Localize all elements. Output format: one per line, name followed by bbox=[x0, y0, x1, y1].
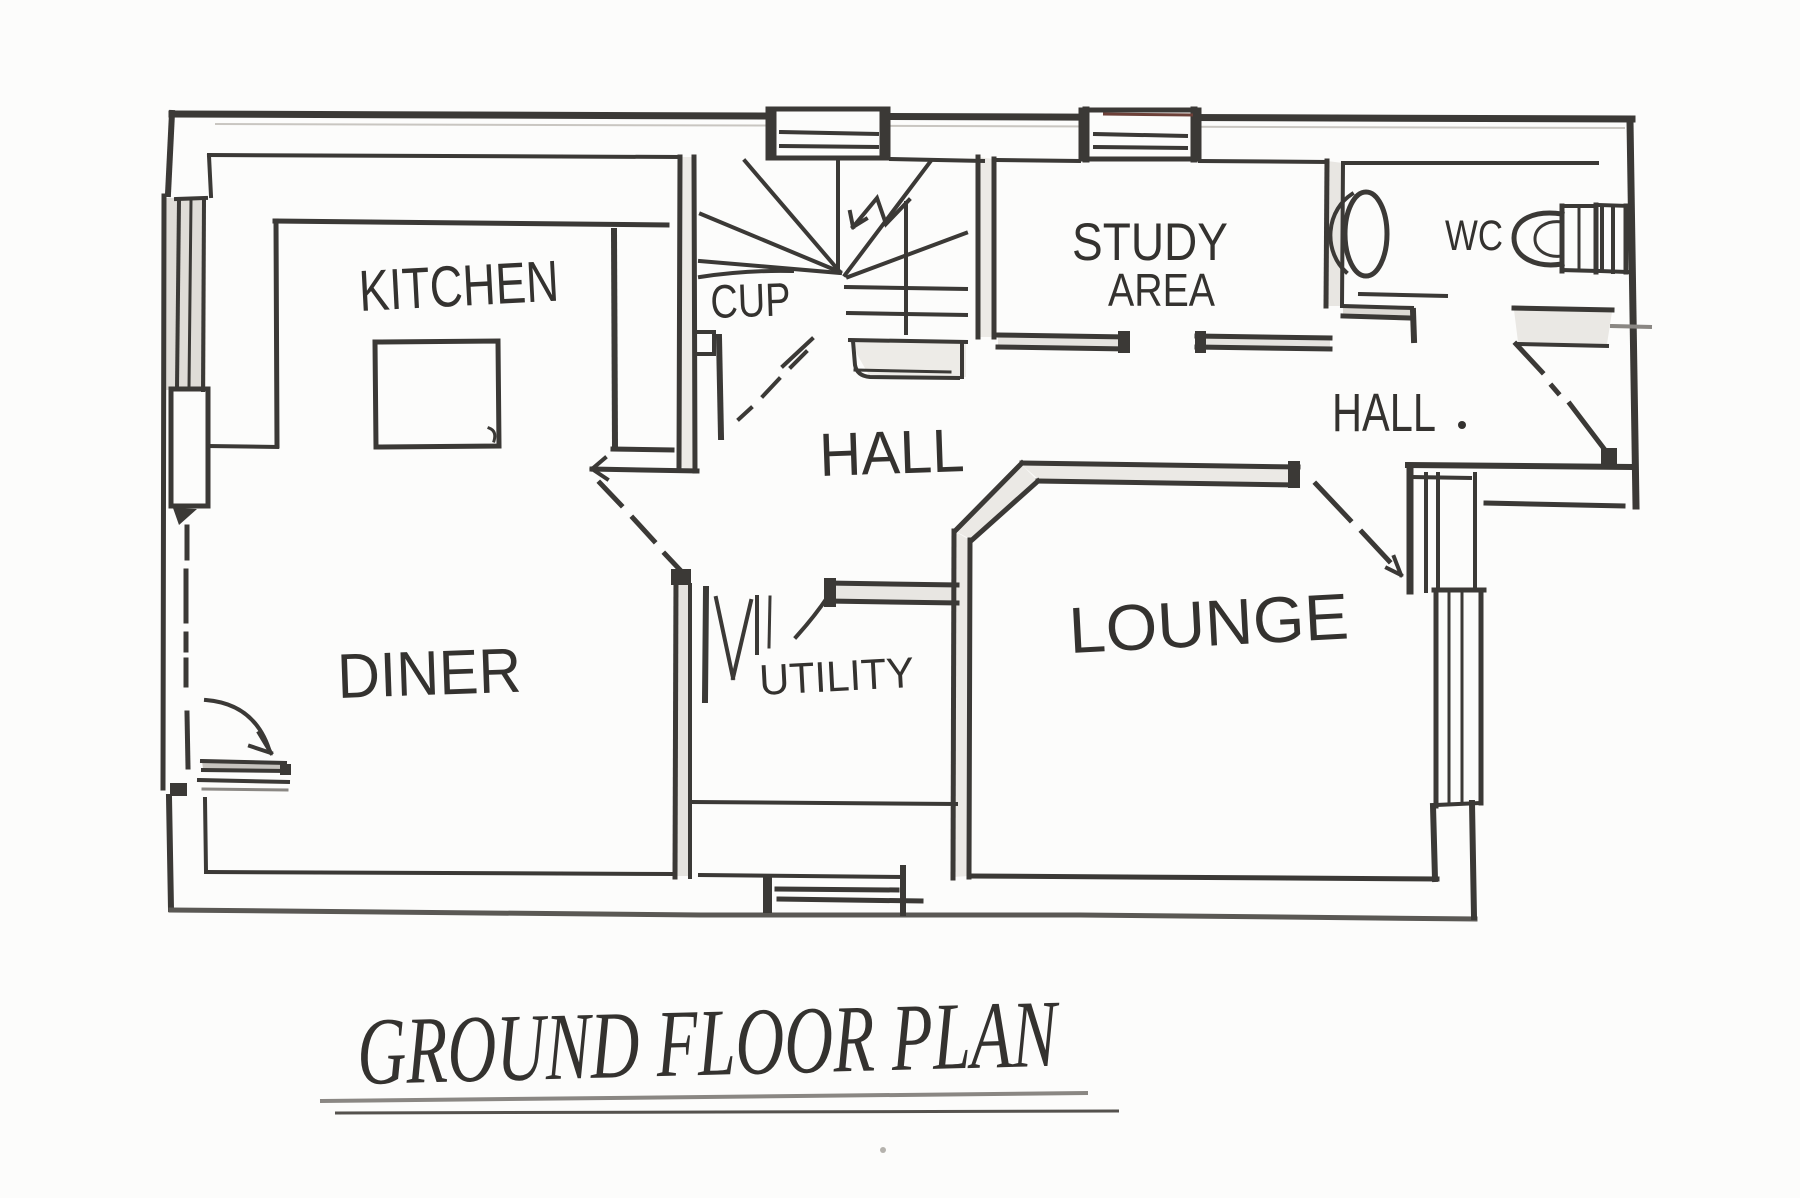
svg-text:WC: WC bbox=[1445, 212, 1503, 260]
svg-text:LOUNGE: LOUNGE bbox=[1067, 579, 1350, 667]
svg-text:GROUND FLOOR PLAN: GROUND FLOOR PLAN bbox=[356, 980, 1062, 1105]
svg-text:AREA: AREA bbox=[1108, 264, 1215, 316]
svg-text:UTILITY: UTILITY bbox=[758, 649, 915, 705]
svg-text:HALL: HALL bbox=[1332, 383, 1436, 443]
svg-text:HALL: HALL bbox=[818, 416, 965, 489]
svg-text:DINER: DINER bbox=[336, 636, 522, 712]
svg-text:KITCHEN: KITCHEN bbox=[357, 249, 560, 324]
svg-text:CUP: CUP bbox=[709, 272, 791, 328]
